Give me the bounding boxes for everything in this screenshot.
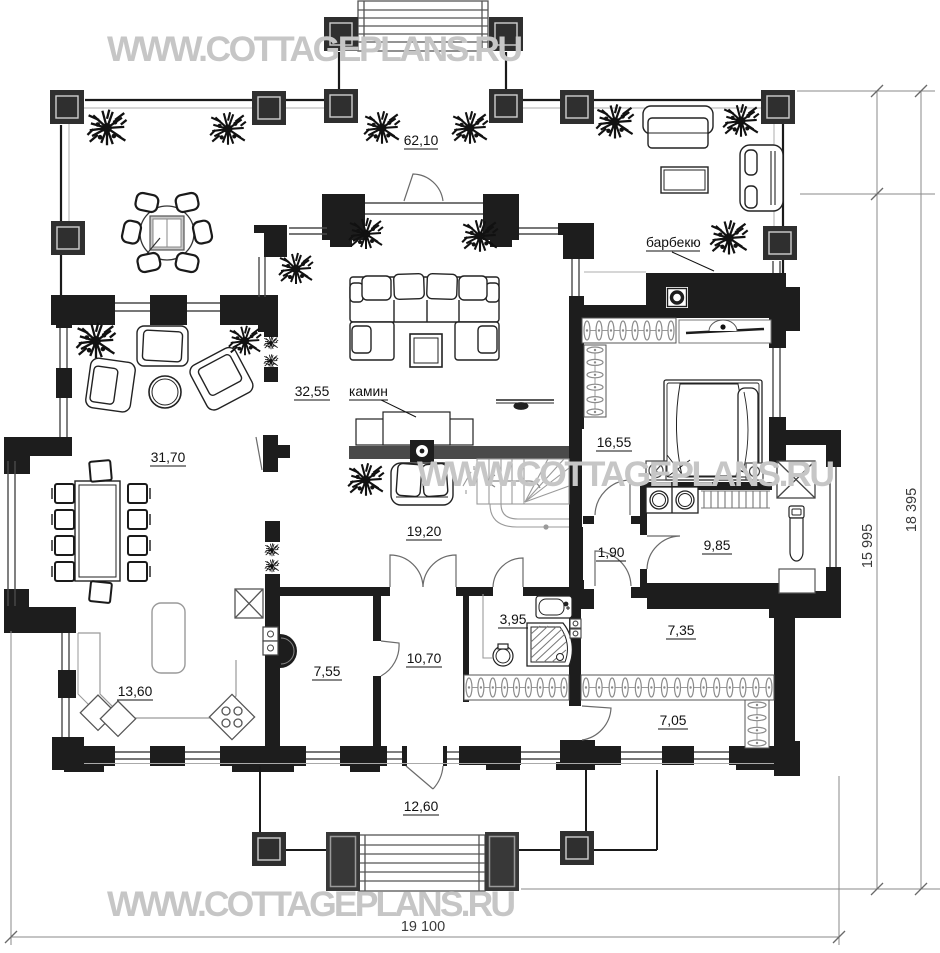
- svg-text:18 395: 18 395: [904, 488, 920, 532]
- svg-text:7,35: 7,35: [668, 623, 695, 638]
- svg-text:WWW.COTTAGEPLANS.RU: WWW.COTTAGEPLANS.RU: [107, 29, 523, 69]
- svg-text:камин: камин: [349, 384, 388, 399]
- svg-text:барбекю: барбекю: [646, 235, 701, 250]
- svg-text:62,10: 62,10: [404, 133, 439, 148]
- svg-text:13,60: 13,60: [118, 684, 153, 699]
- svg-text:12,60: 12,60: [404, 799, 439, 814]
- svg-text:7,55: 7,55: [314, 664, 341, 679]
- svg-text:15 995: 15 995: [860, 524, 876, 568]
- svg-text:WWW.COTTAGEPLANS.RU: WWW.COTTAGEPLANS.RU: [107, 884, 516, 924]
- svg-text:31,70: 31,70: [151, 450, 186, 465]
- svg-text:10,70: 10,70: [407, 651, 442, 666]
- svg-text:1,90: 1,90: [598, 545, 625, 560]
- svg-text:32,55: 32,55: [295, 384, 330, 399]
- svg-text:7,05: 7,05: [660, 713, 687, 728]
- svg-text:3,95: 3,95: [500, 612, 527, 627]
- svg-text:WWW.COTTAGEPLANS.RU: WWW.COTTAGEPLANS.RU: [417, 454, 835, 494]
- svg-text:19,20: 19,20: [407, 524, 442, 539]
- svg-text:9,85: 9,85: [704, 538, 731, 553]
- svg-text:16,55: 16,55: [597, 435, 632, 450]
